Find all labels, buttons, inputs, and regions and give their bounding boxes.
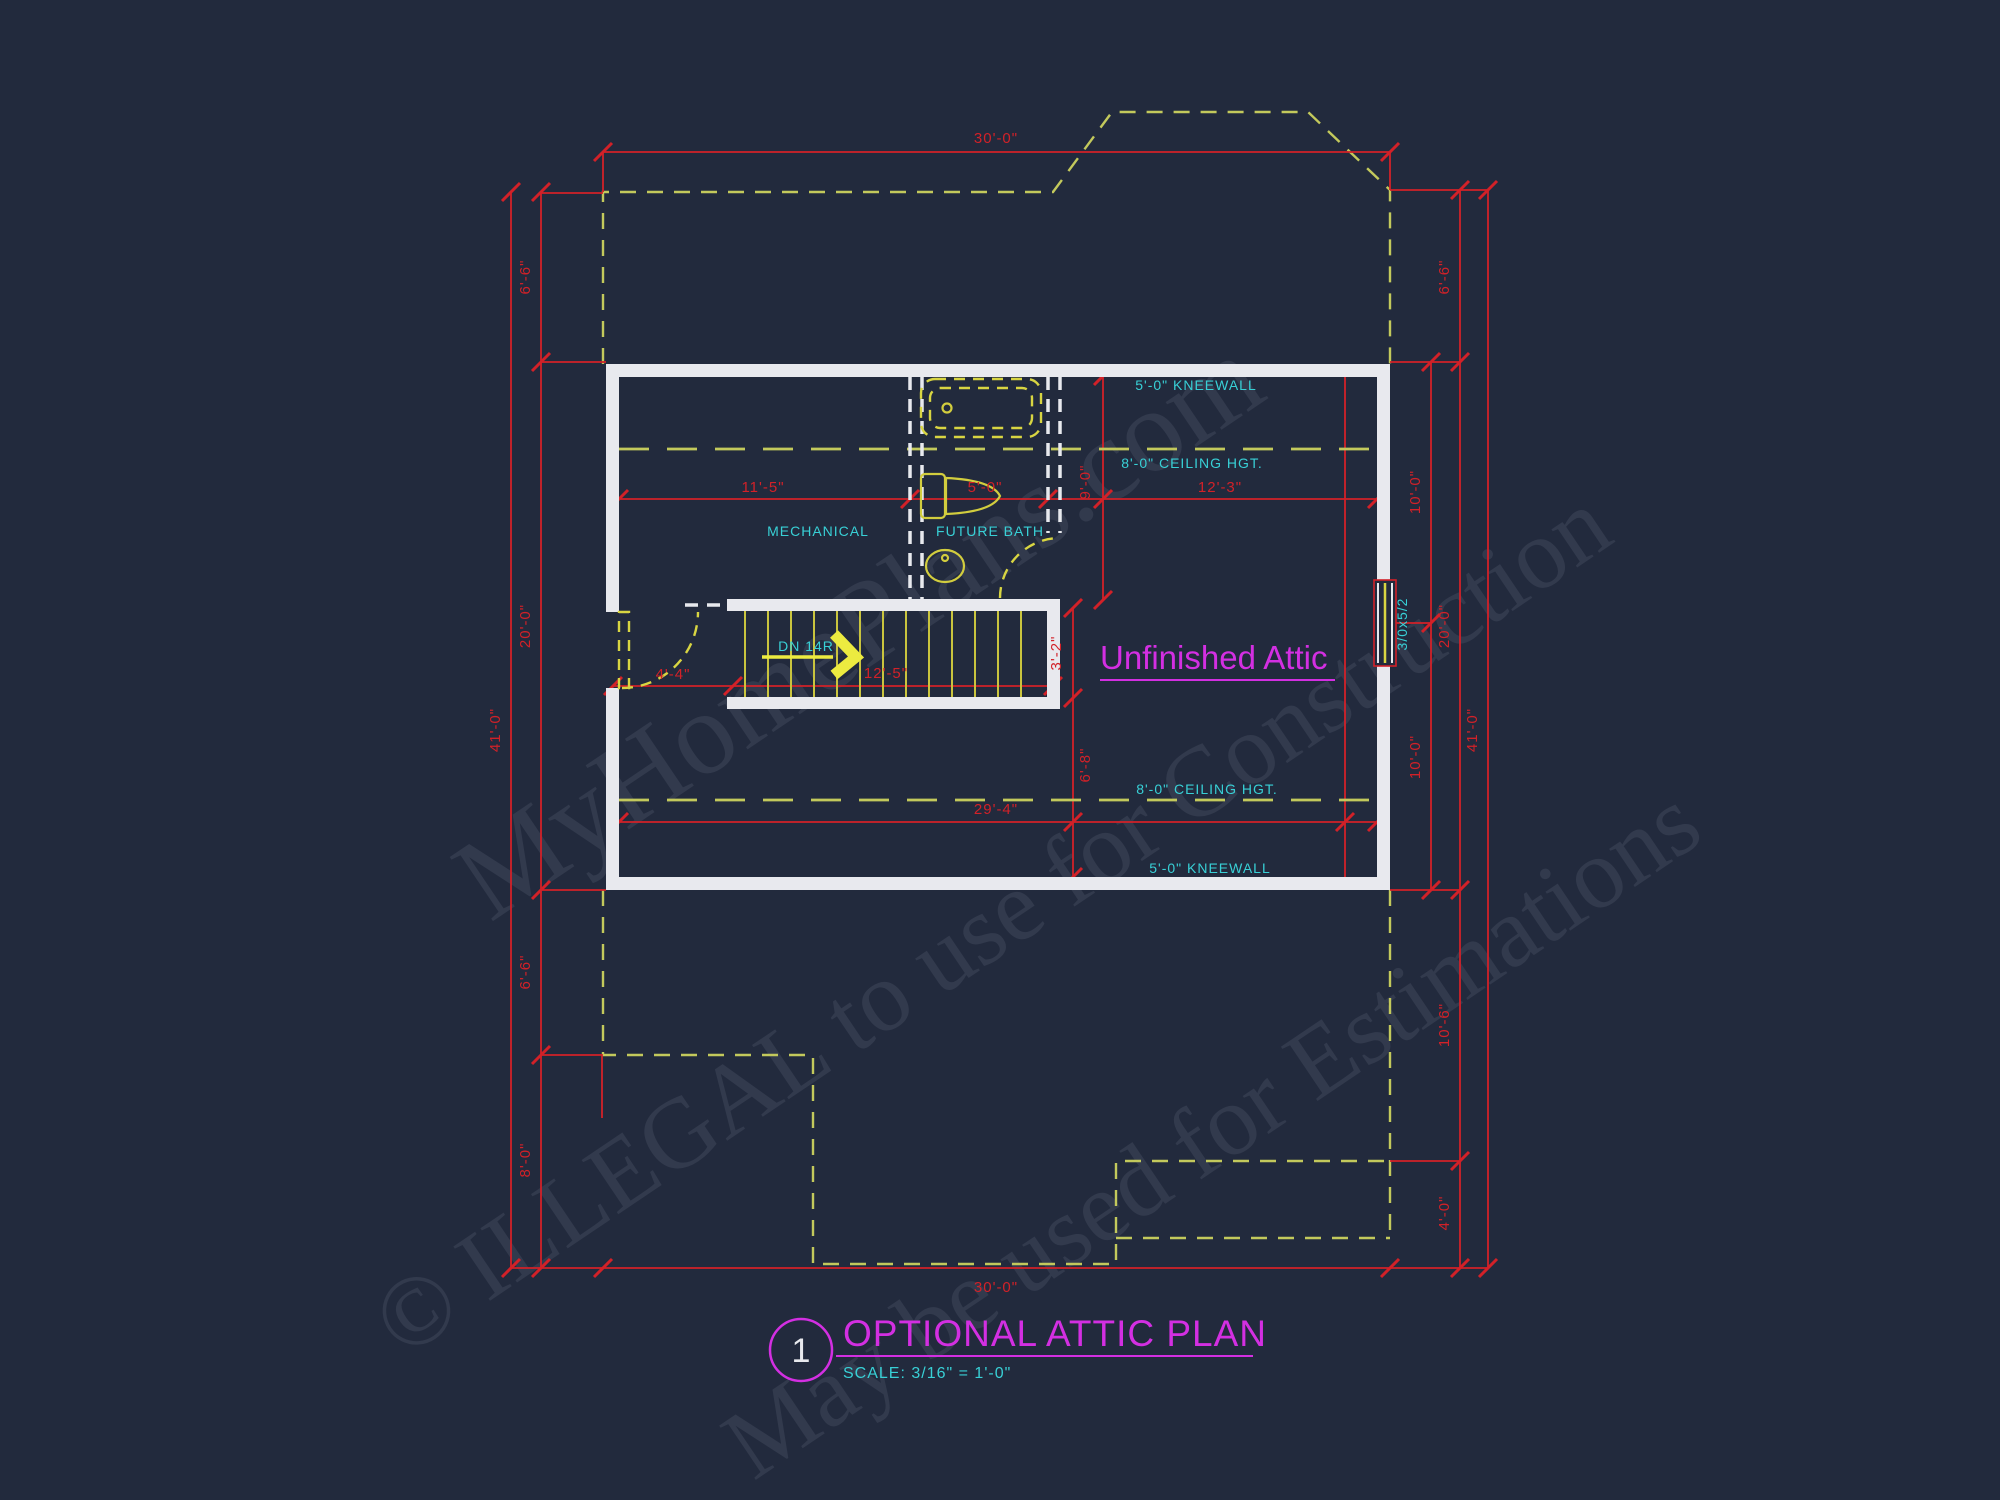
wall-left-upper xyxy=(606,364,619,612)
dim-stair-left: 4'-4" xyxy=(656,666,691,683)
dim-left-outer: 41'-0" xyxy=(487,708,504,752)
dim-left-upper: 6'-6" xyxy=(517,260,534,295)
stair-wall-top xyxy=(727,599,1053,611)
dim-left-lower-mid: 6'-6" xyxy=(517,955,534,990)
wall-bottom xyxy=(606,877,1390,890)
dim-stair-run: 12'-5" xyxy=(864,665,908,682)
unfinished-attic-label: Unfinished Attic xyxy=(1100,639,1327,676)
bathtub-inner xyxy=(930,388,1032,428)
wall-right-upper xyxy=(1377,364,1390,581)
wall-left-lower xyxy=(606,688,619,890)
plan-title: OPTIONAL ATTIC PLAN xyxy=(843,1313,1267,1354)
dim-int-right: 12'-3" xyxy=(1198,479,1242,496)
dim-left-lower: 8'-0" xyxy=(517,1143,534,1178)
dim-right-inner-upper: 10'-0" xyxy=(1407,470,1424,514)
dim-right-bottom: 4'-0" xyxy=(1436,1196,1453,1231)
detail-number: 1 xyxy=(792,1332,811,1370)
dim-int-left: 11'-5" xyxy=(741,479,784,496)
room-title: Unfinished Attic xyxy=(1100,639,1335,680)
wall-top xyxy=(606,364,1390,377)
future-bath-label: FUTURE BATH xyxy=(936,523,1044,539)
dim-int-vert-lower: 6'-8" xyxy=(1077,748,1094,783)
attic-window xyxy=(1374,580,1396,666)
dim-right-inner-lower: 10'-0" xyxy=(1407,735,1424,779)
stair-direction-label: DN 14R xyxy=(778,638,834,654)
dim-int-vert-upper: 9'-0" xyxy=(1077,465,1094,500)
dim-right-lower: 10'-6" xyxy=(1436,1003,1453,1047)
ceiling-bottom-label: 8'-0" CEILING HGT. xyxy=(1136,781,1278,797)
dim-top-width: 30'-0" xyxy=(974,130,1018,147)
dim-right-mid: 20'-0" xyxy=(1436,604,1453,648)
stair-wall-bottom xyxy=(727,697,1060,709)
kneewall-bottom-label: 5'-0" KNEEWALL xyxy=(1149,860,1271,876)
dim-right-outer: 41'-0" xyxy=(1464,708,1481,752)
dim-bottom-width: 30'-0" xyxy=(974,1279,1018,1296)
wall-right-lower xyxy=(1377,665,1390,890)
bathtub-faucet-icon xyxy=(943,404,952,413)
roof-outline-upper xyxy=(603,112,1390,364)
dim-int-bottom: 29'-4" xyxy=(974,801,1018,818)
dim-left-mid: 20'-0" xyxy=(517,604,534,648)
ceiling-top-label: 8'-0" CEILING HGT. xyxy=(1121,455,1263,471)
title-block: 1 OPTIONAL ATTIC PLAN SCALE: 3/16" = 1'-… xyxy=(770,1313,1267,1382)
attic-plan-canvas: MyHomePlans.com © ILLEGAL to use for Con… xyxy=(0,0,2000,1500)
dim-stair-height: 3'-2" xyxy=(1048,636,1065,671)
mechanical-label: MECHANICAL xyxy=(767,523,869,539)
window-size-label: 3/0x5/2 xyxy=(1394,598,1410,651)
kneewall-top-label: 5'-0" KNEEWALL xyxy=(1135,377,1257,393)
plan-scale: SCALE: 3/16" = 1'-0" xyxy=(843,1365,1011,1382)
dim-int-bath: 5'-0" xyxy=(968,479,1003,496)
dim-right-upper: 6'-6" xyxy=(1436,260,1453,295)
